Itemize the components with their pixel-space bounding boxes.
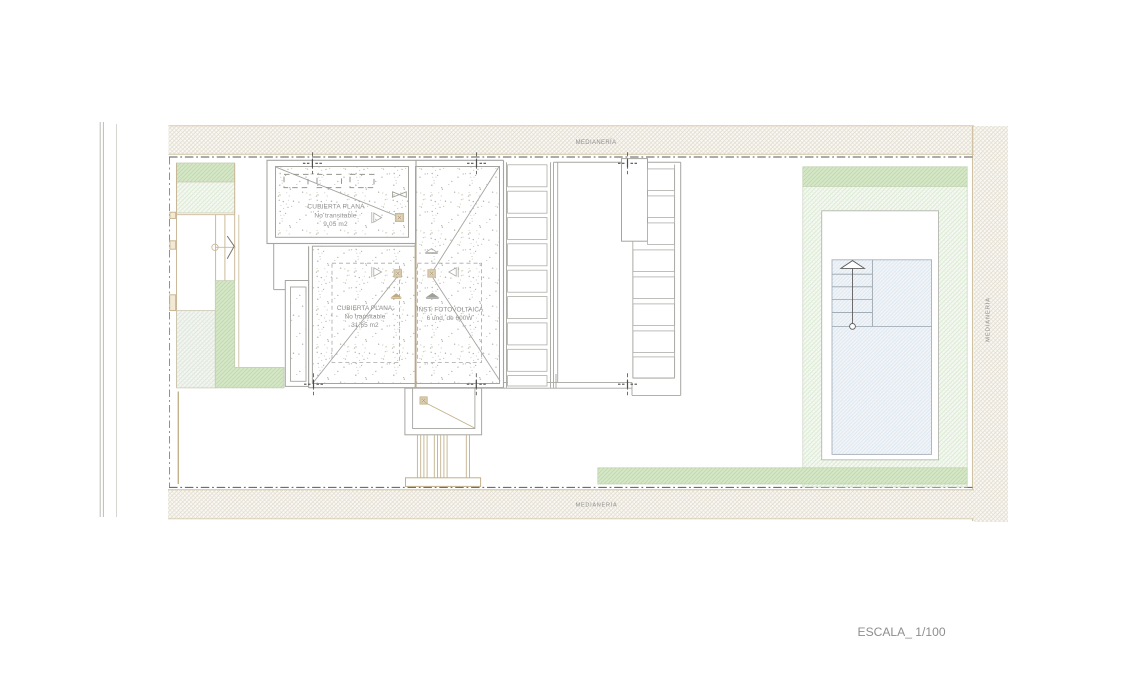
- svg-text:MEDIANERÍA: MEDIANERÍA: [576, 502, 618, 509]
- svg-text:MEDIANERÍA: MEDIANERÍA: [985, 297, 992, 342]
- svg-text:ESCALA_ 1/100: ESCALA_ 1/100: [858, 625, 946, 639]
- svg-text:MEDIANERÍA: MEDIANERÍA: [576, 139, 617, 146]
- svg-text:31,65 m2: 31,65 m2: [351, 322, 379, 329]
- svg-text:9,05 m2: 9,05 m2: [323, 221, 348, 228]
- svg-text:INST. FOTOVOLTAICA: INST. FOTOVOLTAICA: [417, 307, 484, 314]
- svg-text:No transitable: No transitable: [314, 213, 356, 220]
- svg-text:CUBIERTA PLANA: CUBIERTA PLANA: [307, 204, 365, 211]
- svg-text:No transitable: No transitable: [345, 314, 386, 321]
- svg-text:6 und. de 600W: 6 und. de 600W: [427, 315, 474, 322]
- svg-text:CUBIERTA PLANA.: CUBIERTA PLANA.: [337, 305, 395, 312]
